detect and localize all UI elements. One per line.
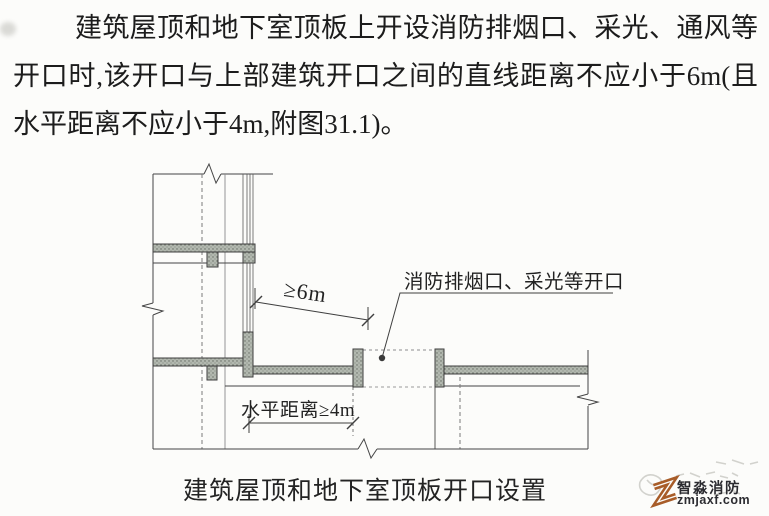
document-page: 建筑屋顶和地下室顶板上开设消防排烟口、采光、通风等 开口时,该开口与上部建筑开口… [0,0,769,516]
figure-caption: 建筑屋顶和地下室顶板开口设置 [145,471,585,507]
opening-leader [379,293,613,361]
break-symbol-bottom [358,439,377,458]
section-detail-drawing [0,0,769,516]
watermark-site-text: zmjaxf.com [677,493,750,507]
opening-curb-left [353,349,363,387]
lower-slab-beam [207,366,217,380]
dim-tick [250,296,262,308]
site-watermark: 智淼消防 zmjaxf.com [620,440,769,516]
roof-slab-left [253,366,353,374]
break-symbol-top [204,164,221,183]
dimension-4m-label: 水平距离≥4m [241,395,355,422]
roof-slab-right [444,366,588,374]
upper-floor-slab [153,244,255,252]
lower-floor-slab [153,358,243,366]
opening-curb-right [435,349,444,387]
opening-label: 消防排烟口、采光等开口 [404,265,624,294]
break-symbol-left [142,303,163,315]
wall-outline [142,164,598,458]
upper-slab-wall-beam [243,252,255,263]
wall-base-parapet [243,332,253,377]
break-symbol-right [577,394,598,405]
upper-slab-beam [207,252,218,267]
